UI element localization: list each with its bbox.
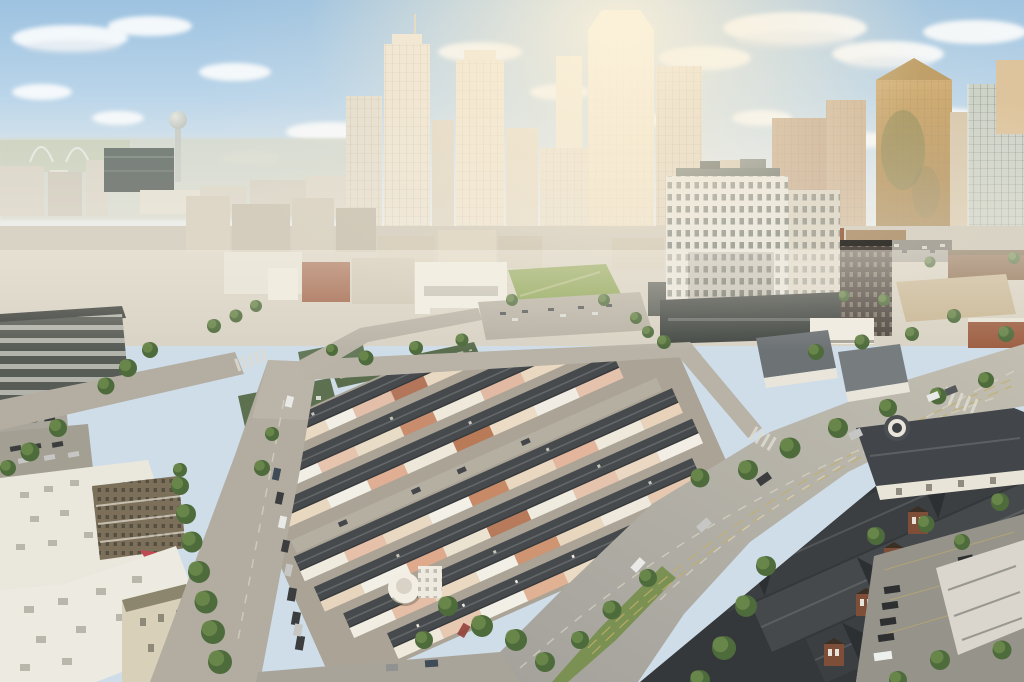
aerial-photo — [0, 0, 1024, 682]
sun-glow — [0, 0, 1024, 682]
